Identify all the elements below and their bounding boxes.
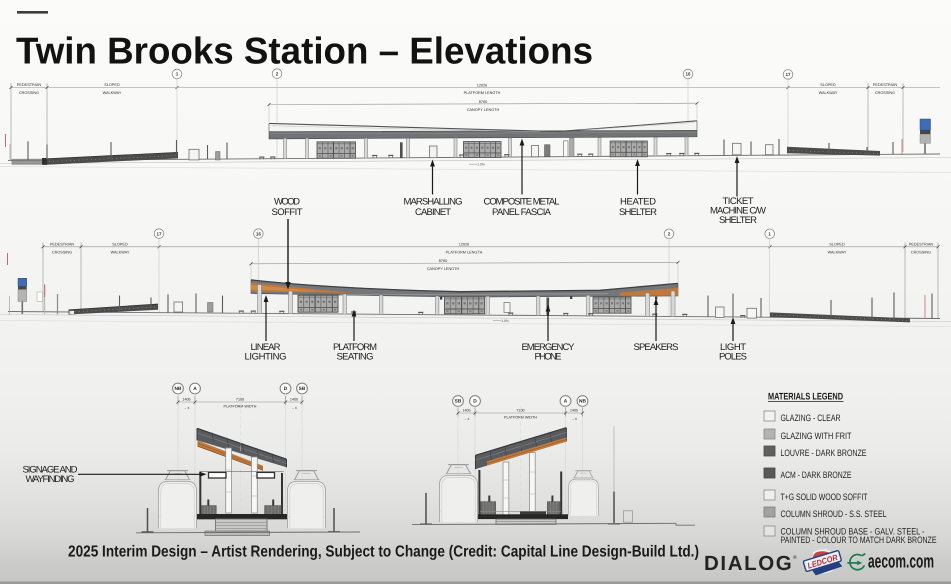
svg-text:SB: SB xyxy=(455,399,462,405)
svg-text:1: 1 xyxy=(768,232,771,237)
svg-text:PHONE: PHONE xyxy=(535,352,562,363)
svg-text:WALKWAY: WALKWAY xyxy=(111,251,130,255)
svg-text:WALKWAY: WALKWAY xyxy=(103,91,122,95)
svg-text:2025 Interim Design – Artist R: 2025 Interim Design – Artist Rendering, … xyxy=(68,544,699,561)
svg-text:PANEL FASCIA: PANEL FASCIA xyxy=(492,207,552,218)
svg-text:1: 1 xyxy=(176,72,179,77)
svg-text:WAYFINDING: WAYFINDING xyxy=(26,474,75,485)
svg-text:PEDESTRIAN: PEDESTRIAN xyxy=(873,83,898,87)
svg-text:POLES: POLES xyxy=(719,352,747,363)
svg-text:CROSSING: CROSSING xyxy=(52,251,72,255)
svg-text:WOOD: WOOD xyxy=(274,197,300,208)
svg-text:SHELTER: SHELTER xyxy=(619,207,657,218)
svg-text:COLUMN SHROUD - S.S. STEEL: COLUMN SHROUD - S.S. STEEL xyxy=(781,509,887,519)
svg-text:→ 6: → 6 xyxy=(571,417,577,421)
svg-text:COMPOSITE METAL: COMPOSITE METAL xyxy=(484,197,560,208)
svg-text:PLATFORM LENGTH: PLATFORM LENGTH xyxy=(464,91,501,95)
svg-text:1405: 1405 xyxy=(182,398,190,402)
svg-text:MARSHALLING: MARSHALLING xyxy=(404,197,463,208)
svg-text:MATERIALS LEGEND: MATERIALS LEGEND xyxy=(768,392,843,403)
svg-text:A: A xyxy=(193,386,197,392)
svg-text:PLATFORM LENGTH: PLATFORM LENGTH xyxy=(446,251,483,255)
svg-text:PLATFORM WIDTH: PLATFORM WIDTH xyxy=(224,405,257,409)
svg-text:D: D xyxy=(473,399,477,405)
svg-text:16: 16 xyxy=(685,72,691,77)
svg-text:DIALOG: DIALOG xyxy=(704,552,793,575)
svg-text:CABINET: CABINET xyxy=(415,207,451,218)
svg-text:LIGHTING: LIGHTING xyxy=(245,352,287,363)
svg-text:Twin Brooks Station – Elevatio: Twin Brooks Station – Elevations xyxy=(16,30,593,72)
svg-text:1.0%: 1.0% xyxy=(501,319,509,323)
svg-text:NB: NB xyxy=(175,386,182,392)
svg-text:SPEAKERS: SPEAKERS xyxy=(634,342,679,353)
svg-text:1405: 1405 xyxy=(570,409,578,413)
svg-text:7100: 7100 xyxy=(236,398,244,402)
svg-text:SLOPED: SLOPED xyxy=(112,242,128,246)
svg-text:NB: NB xyxy=(579,399,586,405)
svg-text:SB: SB xyxy=(299,386,306,392)
svg-text:12026: 12026 xyxy=(459,243,470,247)
svg-text:CROSSING: CROSSING xyxy=(19,91,39,95)
svg-text:16: 16 xyxy=(256,231,262,236)
svg-text:8760: 8760 xyxy=(479,100,487,104)
svg-text:ACM - DARK BRONZE: ACM - DARK BRONZE xyxy=(781,470,852,480)
svg-text:12026: 12026 xyxy=(477,83,488,87)
svg-text:→ 6: → 6 xyxy=(291,406,297,410)
svg-text:1.0%: 1.0% xyxy=(477,162,485,166)
svg-text:D: D xyxy=(284,386,288,392)
svg-text:aecom.com: aecom.com xyxy=(868,552,934,573)
svg-text:GLAZING - CLEAR: GLAZING - CLEAR xyxy=(781,413,841,423)
svg-text:SLOPED: SLOPED xyxy=(104,83,120,87)
svg-text:CANOPY LENGTH: CANOPY LENGTH xyxy=(467,108,500,112)
svg-text:→ 6: → 6 xyxy=(464,417,470,421)
svg-text:→ 6: → 6 xyxy=(184,406,190,410)
svg-text:®: ® xyxy=(793,555,797,561)
svg-text:SEATING: SEATING xyxy=(337,352,374,363)
svg-text:SHELTER: SHELTER xyxy=(719,215,757,226)
svg-text:LOUVRE - DARK BRONZE: LOUVRE - DARK BRONZE xyxy=(781,448,867,458)
svg-text:PEDESTRIAN: PEDESTRIAN xyxy=(17,83,42,87)
svg-text:17: 17 xyxy=(785,72,791,77)
svg-text:A: A xyxy=(564,399,568,405)
svg-text:HEATED: HEATED xyxy=(620,197,656,208)
svg-text:1405: 1405 xyxy=(462,409,470,413)
svg-text:GLAZING WITH FRIT: GLAZING WITH FRIT xyxy=(781,431,852,441)
svg-text:17: 17 xyxy=(156,231,162,236)
svg-text:8760: 8760 xyxy=(439,259,447,263)
svg-text:2: 2 xyxy=(668,232,671,237)
svg-text:CROSSING: CROSSING xyxy=(875,91,895,95)
svg-text:CANOPY LENGTH: CANOPY LENGTH xyxy=(427,267,460,271)
svg-text:PAINTED - COLOUR TO MATCH DARK: PAINTED - COLOUR TO MATCH DARK BRONZE xyxy=(781,535,937,545)
svg-text:1405: 1405 xyxy=(290,398,298,402)
svg-text:SOFFIT: SOFFIT xyxy=(272,207,303,218)
svg-text:SLOPED: SLOPED xyxy=(829,242,845,246)
svg-text:WALKWAY: WALKWAY xyxy=(828,251,847,255)
svg-text:WALKWAY: WALKWAY xyxy=(819,91,838,95)
svg-text:T+G SOLID WOOD SOFFIT: T+G SOLID WOOD SOFFIT xyxy=(781,492,868,502)
svg-text:2: 2 xyxy=(276,71,279,76)
svg-text:PEDESTRIAN: PEDESTRIAN xyxy=(909,242,934,246)
svg-text:CROSSING: CROSSING xyxy=(911,251,931,255)
svg-text:SLOPED: SLOPED xyxy=(820,83,836,87)
svg-text:PEDESTRIAN: PEDESTRIAN xyxy=(50,242,75,246)
